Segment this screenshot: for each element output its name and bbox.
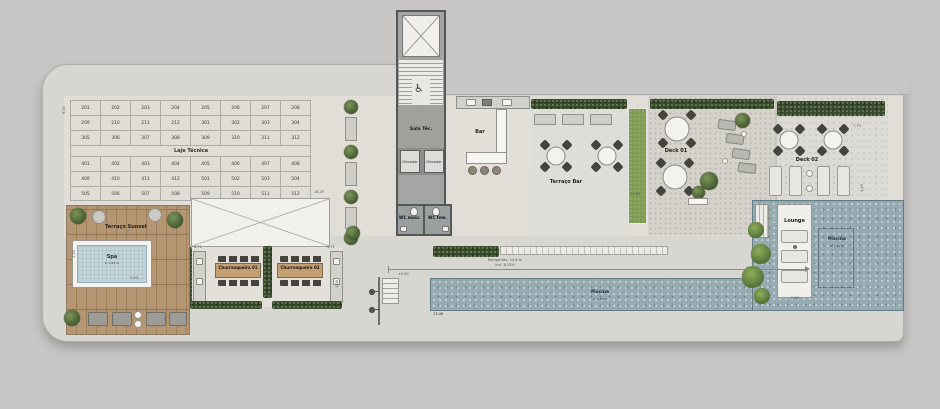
laje-cell: 205 <box>190 100 220 115</box>
hedge <box>777 101 885 116</box>
laje-cell: 309 <box>190 130 220 145</box>
dimension: 6,04 <box>62 98 66 122</box>
bench <box>345 117 357 141</box>
pergola <box>191 198 330 247</box>
laje-cell: 504 <box>280 171 310 186</box>
sink-icon <box>196 278 203 285</box>
laje-cell: 207 <box>250 100 280 115</box>
hedge <box>650 99 774 109</box>
floor-plan: 6,04 201 202 203 204 205 206 207 208 209… <box>0 0 940 409</box>
terraco-bar-label: Terraço Bar <box>536 180 596 186</box>
sun-lounger <box>781 270 808 283</box>
sink-icon <box>442 226 449 232</box>
chair-icon <box>685 137 696 148</box>
laje-cell: 412 <box>160 171 190 186</box>
bench <box>345 162 357 186</box>
chair-icon <box>655 185 666 196</box>
spa-label: Spa <box>82 255 142 261</box>
ramp-slope-label: incl. 8,33% <box>455 263 555 267</box>
laje-cell: 306 <box>100 130 130 145</box>
chair-icon <box>838 145 849 156</box>
level-mark: ±0,00 <box>398 272 409 276</box>
laje-cell: 407 <box>250 156 280 171</box>
dimension: 4,71 <box>194 245 202 249</box>
laje-cell: 311 <box>250 130 280 145</box>
chairs <box>218 280 262 286</box>
laje-cell: 303 <box>250 115 280 130</box>
laje-cell: 401 <box>70 156 100 171</box>
chair-icon <box>657 109 668 120</box>
bush-icon <box>344 100 358 114</box>
sala-tecnica-label: Sala Téc. <box>398 128 444 133</box>
laje-cell: 406 <box>220 156 250 171</box>
sun-lounger <box>781 230 808 243</box>
bar-island <box>496 109 507 154</box>
ramp-label: Rampa des. 14,4 m <box>455 258 555 262</box>
laje-cell: 304 <box>280 115 310 130</box>
table-top <box>780 131 799 150</box>
stair-treads <box>399 59 443 79</box>
piscina-main-depth: h: 1,30 m <box>815 244 859 248</box>
side-table <box>806 185 813 192</box>
stool-icon <box>492 166 501 175</box>
dimension: 2,26 <box>791 296 799 300</box>
laje-cell: 305 <box>70 130 100 145</box>
shower-icon <box>369 307 375 313</box>
dimension: 4,71 <box>327 245 335 249</box>
laje-cell: 405 <box>190 156 220 171</box>
dimension: 7,75 <box>853 124 861 128</box>
cafe-table <box>592 141 622 171</box>
laje-cell: 204 <box>160 100 190 115</box>
ramp-arrow-icon <box>805 266 810 272</box>
laje-cell: 203 <box>130 100 160 115</box>
sun-lounger <box>781 250 808 263</box>
sun-lounger <box>769 166 782 196</box>
piscina-raia-label: Piscina <box>575 291 625 296</box>
churrasqueira-02-label: Churrasqueira 02 <box>266 266 334 270</box>
chairs <box>280 256 324 262</box>
laje-cell: 503 <box>250 171 280 186</box>
sun-lounger <box>817 166 830 196</box>
round-table <box>659 111 695 147</box>
dimension: 13,46 <box>433 312 443 316</box>
laje-cell: 302 <box>220 115 250 130</box>
bench <box>534 114 556 125</box>
dimension: 11,63 <box>630 192 640 196</box>
cafe-table <box>541 141 571 171</box>
planter-pot-icon <box>92 210 106 224</box>
sun-lounger <box>169 312 187 326</box>
table-top <box>598 147 617 166</box>
side-table <box>134 311 142 319</box>
dimension: 2,30 <box>72 244 76 264</box>
chair-icon <box>612 161 623 172</box>
laje-cell: 402 <box>100 156 130 171</box>
dimension: 3,08 <box>335 273 339 295</box>
laje-cell: 310 <box>220 130 250 145</box>
wc-masc-label: WC masc. <box>396 216 424 220</box>
laje-cell: 505 <box>70 186 100 201</box>
deck-02-label: Deck 02 <box>782 158 832 164</box>
sun-lounger <box>837 166 850 196</box>
chair-icon <box>794 145 805 156</box>
round-table <box>818 125 848 155</box>
stair-treads <box>399 79 412 105</box>
terraco-sunset-label: Terraço Sunset <box>86 225 166 231</box>
laje-cell: 209 <box>70 115 100 130</box>
chair-icon <box>657 137 668 148</box>
side-table <box>793 245 797 249</box>
laje-cell: 410 <box>100 171 130 186</box>
table-top <box>547 147 566 166</box>
bar-label: Bar <box>466 130 494 136</box>
laje-cell: 208 <box>280 100 310 115</box>
pool-ladder <box>382 278 399 304</box>
bush-icon <box>70 208 86 224</box>
dimension: 4,93 <box>130 276 138 280</box>
bench <box>562 114 584 125</box>
chairs <box>280 280 324 286</box>
side-table <box>741 131 747 137</box>
shower-arm <box>374 309 379 310</box>
deck-01-label: Deck 01 <box>651 149 701 155</box>
planter-pot-icon <box>148 208 162 222</box>
ramp-line <box>388 269 806 270</box>
laje-cell: 211 <box>130 115 160 130</box>
sun-lounger <box>88 312 108 326</box>
hedge <box>272 301 342 309</box>
laje-cell: 508 <box>160 186 190 201</box>
laje-cell: 501 <box>190 171 220 186</box>
table-top <box>665 117 690 142</box>
bush-icon <box>64 310 80 326</box>
bench <box>688 198 708 205</box>
wheelchair-icon: ♿ <box>414 82 424 95</box>
sink-icon <box>196 258 203 265</box>
sun-lounger <box>789 166 802 196</box>
elevator-1: Elevador <box>400 150 420 173</box>
lounge-label: Lounge <box>777 219 812 225</box>
grass-strip <box>628 108 647 224</box>
laje-cell: 404 <box>160 156 190 171</box>
bush-icon <box>344 145 358 159</box>
bar-island <box>466 152 507 164</box>
sink-icon <box>502 99 512 106</box>
laje-cell: 301 <box>190 115 220 130</box>
hedge <box>433 246 499 257</box>
roof-hatch <box>402 15 440 57</box>
chair-icon <box>685 109 696 120</box>
background-mask <box>446 56 910 95</box>
laje-cell: 307 <box>130 130 160 145</box>
laje-cell: 202 <box>100 100 130 115</box>
spa-depth: h: 0,50 m <box>82 261 142 265</box>
hedge <box>531 99 627 109</box>
laje-cell: 507 <box>130 186 160 201</box>
piscina-main-label: Piscina <box>815 238 859 243</box>
chair-icon <box>683 157 694 168</box>
piscina-raia-depth: h: 1,30 m <box>575 297 625 301</box>
ramp-tick <box>388 266 389 273</box>
chair-icon <box>655 157 666 168</box>
side-table <box>806 170 813 177</box>
churrasqueira-01-label: Churrasqueira 01 <box>204 266 272 270</box>
sink-icon <box>466 99 476 106</box>
side-table <box>722 158 728 164</box>
shower-wall <box>378 277 380 325</box>
bush-icon <box>344 190 358 204</box>
shower-icon <box>369 289 375 295</box>
bush-icon <box>346 226 360 240</box>
wc-fem-label: WC fem. <box>424 216 451 220</box>
cooktop-icon <box>482 99 492 106</box>
table-top <box>663 165 688 190</box>
laje-cell: 502 <box>220 171 250 186</box>
dimension: 4,40 <box>860 178 864 198</box>
trellis-bench <box>500 246 668 255</box>
laje-cell: 308 <box>160 130 190 145</box>
hedge <box>190 301 262 309</box>
laje-cell: 403 <box>130 156 160 171</box>
laje-cell: 506 <box>100 186 130 201</box>
laje-cell: 409 <box>70 171 100 186</box>
laje-cell: 201 <box>70 100 100 115</box>
bush-icon <box>167 212 183 228</box>
stool-icon <box>468 166 477 175</box>
laje-tecnica-grid: 201 202 203 204 205 206 207 208 209 210 … <box>70 100 311 201</box>
laje-cell: 210 <box>100 115 130 130</box>
round-table <box>774 125 804 155</box>
round-table <box>657 159 693 195</box>
stair-treads <box>430 79 443 105</box>
bush-icon <box>735 113 750 128</box>
laje-cell: 411 <box>130 171 160 186</box>
laje-cell: 312 <box>280 130 310 145</box>
chair-icon <box>561 161 572 172</box>
laje-cell: 408 <box>280 156 310 171</box>
side-table <box>134 320 142 328</box>
planter <box>263 246 272 298</box>
shower-arm <box>374 291 379 292</box>
dimension: 18,29 <box>314 190 324 194</box>
bench <box>590 114 612 125</box>
sun-lounger <box>112 312 132 326</box>
table-top <box>824 131 843 150</box>
sink-icon <box>333 258 340 265</box>
chairs <box>218 256 262 262</box>
laje-cell: 206 <box>220 100 250 115</box>
elevator-2: Elevador <box>424 150 444 173</box>
laje-tecnica-label: Laje Técnica <box>70 145 311 156</box>
sun-lounger <box>146 312 166 326</box>
stool-icon <box>480 166 489 175</box>
sink-icon <box>400 226 407 232</box>
laje-cell: 212 <box>160 115 190 130</box>
